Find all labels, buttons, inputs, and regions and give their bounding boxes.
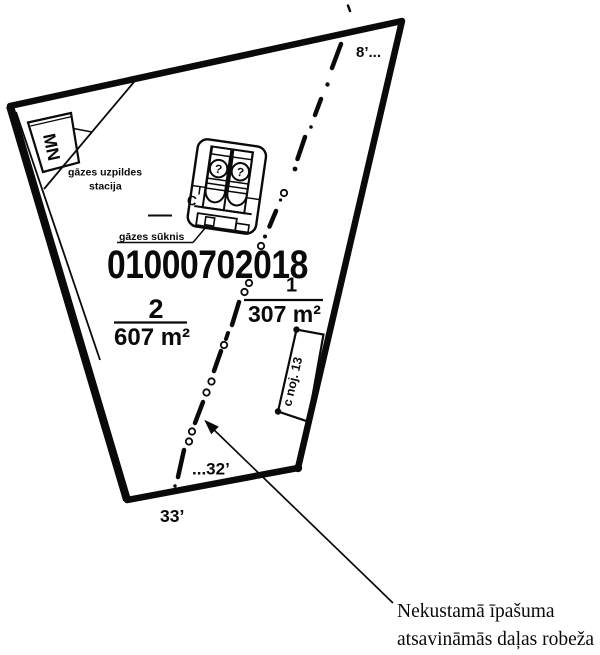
- svg-text:2: 2: [148, 294, 163, 324]
- svg-text:1: 1: [286, 275, 297, 297]
- svg-text:Nekustamā īpašuma: Nekustamā īpašuma: [397, 601, 555, 622]
- svg-text:607 m²: 607 m²: [114, 324, 190, 351]
- svg-text:atsavināmās daļas robeža: atsavināmās daļas robeža: [397, 629, 594, 650]
- svg-text:01000702018: 01000702018: [107, 242, 308, 286]
- svg-text:gāzes sūknis: gāzes sūknis: [119, 231, 185, 243]
- svg-text:stacija: stacija: [89, 181, 122, 193]
- svg-text:307 m²: 307 m²: [248, 301, 321, 327]
- svg-text:gāzes uzpildes: gāzes uzpildes: [68, 167, 142, 179]
- svg-text:...32’: ...32’: [192, 460, 230, 479]
- svg-text:8’...: 8’...: [356, 44, 381, 61]
- svg-text:33’: 33’: [160, 506, 184, 526]
